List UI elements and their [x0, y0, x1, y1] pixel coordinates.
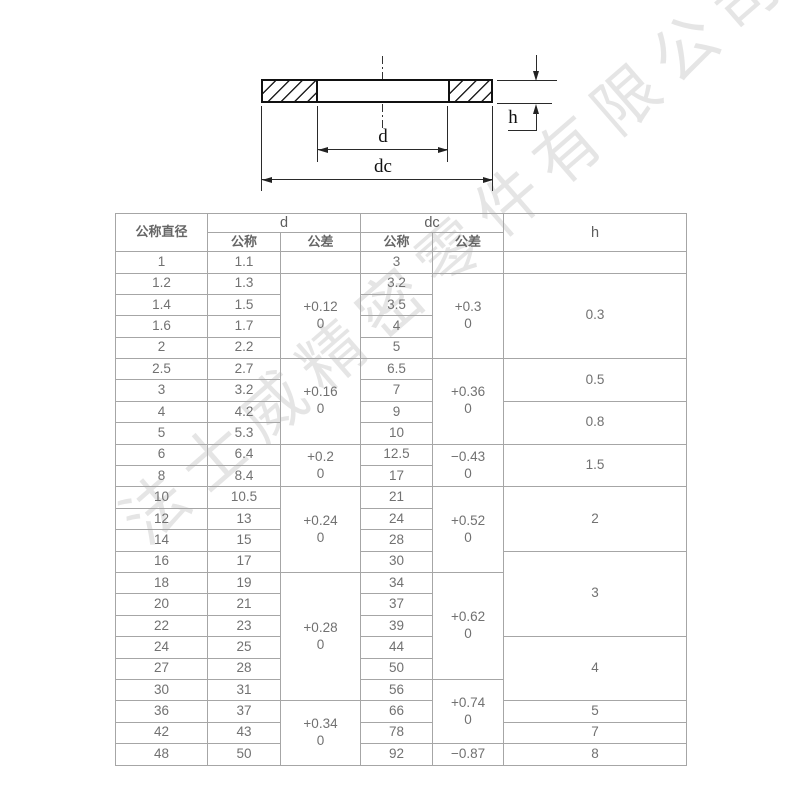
cell-nominal-diameter: 27 — [116, 658, 208, 679]
cell-dc-nominal: 6.5 — [361, 359, 433, 380]
cell-h: 0.8 — [504, 401, 687, 444]
dc-dimension-label: dc — [368, 157, 398, 176]
header-nominal-diameter: 公称直径 — [116, 214, 208, 252]
cell-d-nominal: 17 — [208, 551, 281, 572]
cell-dc-tolerance: +0.52 0 — [433, 487, 504, 573]
cell-nominal-diameter: 1.6 — [116, 316, 208, 337]
table-row: 2.52.7+0.16 06.5+0.36 00.5 — [116, 359, 687, 380]
cell-dc-nominal: 24 — [361, 508, 433, 529]
cell-d-nominal: 1.3 — [208, 273, 281, 294]
cell-d-nominal: 19 — [208, 572, 281, 593]
cell-d-nominal: 8.4 — [208, 466, 281, 487]
cell-h: 2 — [504, 487, 687, 551]
cell-nominal-diameter: 4 — [116, 401, 208, 422]
table-row: 1.21.3+0.12 03.2+0.3 00.3 — [116, 273, 687, 294]
washer-cross-section-drawing: d dc h — [0, 0, 800, 210]
dc-arrow-right-icon — [483, 177, 493, 183]
dc-arrow-left-icon — [262, 177, 272, 183]
extension-line-hole-left — [317, 106, 318, 162]
cell-nominal-diameter: 1 — [116, 252, 208, 273]
section-hatch-left — [263, 81, 318, 101]
header-group-h: h — [504, 214, 687, 252]
cell-nominal-diameter: 2 — [116, 337, 208, 358]
cell-dc-nominal: 56 — [361, 679, 433, 700]
cell-nominal-diameter: 16 — [116, 551, 208, 572]
cell-d-nominal: 50 — [208, 744, 281, 765]
cell-d-nominal: 43 — [208, 722, 281, 743]
cell-h: 3 — [504, 551, 687, 637]
cell-dc-nominal: 9 — [361, 401, 433, 422]
header-group-dc: dc — [361, 214, 504, 233]
cell-dc-tolerance: +0.74 0 — [433, 679, 504, 743]
cell-d-nominal: 1.1 — [208, 252, 281, 273]
header-group-d: d — [208, 214, 361, 233]
header-dc-nominal: 公称 — [361, 233, 433, 252]
cell-dc-tolerance — [433, 252, 504, 273]
cell-d-nominal: 10.5 — [208, 487, 281, 508]
cell-h: 1.5 — [504, 444, 687, 487]
h-dimension-label: h — [506, 108, 520, 127]
table-row: 485092−0.878 — [116, 744, 687, 765]
cell-dc-nominal: 3.5 — [361, 294, 433, 315]
table-row: 11.13 — [116, 252, 687, 273]
cell-dc-nominal: 37 — [361, 594, 433, 615]
cell-dc-tolerance: +0.36 0 — [433, 359, 504, 445]
cell-d-nominal: 31 — [208, 679, 281, 700]
cell-h — [504, 252, 687, 273]
table-row: 66.4+0.2 012.5−0.43 01.5 — [116, 444, 687, 465]
extension-line-hole-right — [447, 106, 448, 162]
cell-dc-nominal: 10 — [361, 423, 433, 444]
cell-dc-nominal: 28 — [361, 530, 433, 551]
cell-dc-nominal: 3.2 — [361, 273, 433, 294]
cell-dc-nominal: 39 — [361, 615, 433, 636]
cell-nominal-diameter: 20 — [116, 594, 208, 615]
h-arrow-shaft-bottom — [536, 113, 537, 131]
cell-dc-nominal: 44 — [361, 637, 433, 658]
cell-dc-nominal: 12.5 — [361, 444, 433, 465]
cell-dc-nominal: 21 — [361, 487, 433, 508]
header-dc-tolerance: 公差 — [433, 233, 504, 252]
washer-body-outline — [261, 79, 493, 103]
cell-d-nominal: 25 — [208, 637, 281, 658]
h-arrow-shaft-top — [536, 55, 537, 72]
cell-dc-nominal: 17 — [361, 466, 433, 487]
h-extension-line-bottom — [497, 103, 552, 104]
cell-nominal-diameter: 1.2 — [116, 273, 208, 294]
cell-h: 7 — [504, 722, 687, 743]
cell-nominal-diameter: 42 — [116, 722, 208, 743]
cell-dc-nominal: 4 — [361, 316, 433, 337]
cell-nominal-diameter: 14 — [116, 530, 208, 551]
section-hatch-right — [448, 81, 491, 101]
cell-nominal-diameter: 5 — [116, 423, 208, 444]
cell-d-nominal: 6.4 — [208, 444, 281, 465]
cell-nominal-diameter: 2.5 — [116, 359, 208, 380]
cell-dc-nominal: 50 — [361, 658, 433, 679]
spec-table-body: 11.131.21.3+0.12 03.2+0.3 00.31.41.53.51… — [116, 252, 687, 765]
cell-dc-tolerance: −0.43 0 — [433, 444, 504, 487]
cell-h: 4 — [504, 637, 687, 701]
h-arrow-down-icon — [533, 71, 539, 81]
d-dimension-label: d — [370, 127, 396, 146]
cell-d-nominal: 5.3 — [208, 423, 281, 444]
cell-nominal-diameter: 30 — [116, 679, 208, 700]
cell-d-nominal: 4.2 — [208, 401, 281, 422]
cell-nominal-diameter: 22 — [116, 615, 208, 636]
cell-dc-nominal: 7 — [361, 380, 433, 401]
cell-d-nominal: 28 — [208, 658, 281, 679]
cell-nominal-diameter: 3 — [116, 380, 208, 401]
cell-dc-tolerance: +0.62 0 — [433, 572, 504, 679]
cell-nominal-diameter: 1.4 — [116, 294, 208, 315]
cell-dc-nominal: 5 — [361, 337, 433, 358]
cell-d-nominal: 2.2 — [208, 337, 281, 358]
cell-nominal-diameter: 24 — [116, 637, 208, 658]
table-row: 4243787 — [116, 722, 687, 743]
cell-h: 0.5 — [504, 359, 687, 402]
cell-d-nominal: 37 — [208, 701, 281, 722]
d-dimension-line — [318, 149, 448, 150]
cell-dc-tolerance: −0.87 — [433, 744, 504, 765]
header-row-groups: 公称直径 d dc h — [116, 214, 687, 233]
table-row: 44.290.8 — [116, 401, 687, 422]
header-d-tolerance: 公差 — [281, 233, 361, 252]
cell-nominal-diameter: 10 — [116, 487, 208, 508]
washer-spec-table: 公称直径 d dc h 公称 公差 公称 公差 11.131.21.3+0.12… — [115, 213, 687, 766]
cell-h: 0.3 — [504, 273, 687, 359]
cell-nominal-diameter: 6 — [116, 444, 208, 465]
cell-nominal-diameter: 12 — [116, 508, 208, 529]
cell-dc-tolerance: +0.3 0 — [433, 273, 504, 359]
cell-dc-nominal: 34 — [361, 572, 433, 593]
table-row: 2425444 — [116, 637, 687, 658]
cell-d-nominal: 1.7 — [208, 316, 281, 337]
cell-d-tolerance: +0.28 0 — [281, 572, 361, 700]
cell-dc-nominal: 78 — [361, 722, 433, 743]
table-row: 1010.5+0.24 021+0.52 02 — [116, 487, 687, 508]
cell-d-tolerance: +0.34 0 — [281, 701, 361, 765]
cell-d-nominal: 2.7 — [208, 359, 281, 380]
header-d-nominal: 公称 — [208, 233, 281, 252]
cell-nominal-diameter: 36 — [116, 701, 208, 722]
cell-dc-nominal: 3 — [361, 252, 433, 273]
dc-dimension-line — [262, 179, 493, 180]
cell-d-tolerance: +0.2 0 — [281, 444, 361, 487]
cell-h: 5 — [504, 701, 687, 722]
cell-d-nominal: 13 — [208, 508, 281, 529]
d-arrow-right-icon — [438, 147, 448, 153]
cell-h: 8 — [504, 744, 687, 765]
cell-d-nominal: 15 — [208, 530, 281, 551]
cell-d-nominal: 23 — [208, 615, 281, 636]
h-extension-line-top — [497, 80, 557, 81]
cell-nominal-diameter: 48 — [116, 744, 208, 765]
cell-nominal-diameter: 18 — [116, 572, 208, 593]
cell-d-tolerance: +0.16 0 — [281, 359, 361, 445]
cell-dc-nominal: 66 — [361, 701, 433, 722]
table-row: 1617303 — [116, 551, 687, 572]
cell-dc-nominal: 92 — [361, 744, 433, 765]
cell-d-tolerance — [281, 252, 361, 273]
cell-d-nominal: 21 — [208, 594, 281, 615]
h-leader-line — [508, 130, 537, 131]
cell-d-nominal: 3.2 — [208, 380, 281, 401]
table-row: 3637+0.34 0665 — [116, 701, 687, 722]
cell-d-tolerance: +0.12 0 — [281, 273, 361, 359]
cell-d-tolerance: +0.24 0 — [281, 487, 361, 573]
d-arrow-left-icon — [318, 147, 328, 153]
table-header: 公称直径 d dc h 公称 公差 公称 公差 — [116, 214, 687, 252]
cell-d-nominal: 1.5 — [208, 294, 281, 315]
cell-dc-nominal: 30 — [361, 551, 433, 572]
cell-nominal-diameter: 8 — [116, 466, 208, 487]
